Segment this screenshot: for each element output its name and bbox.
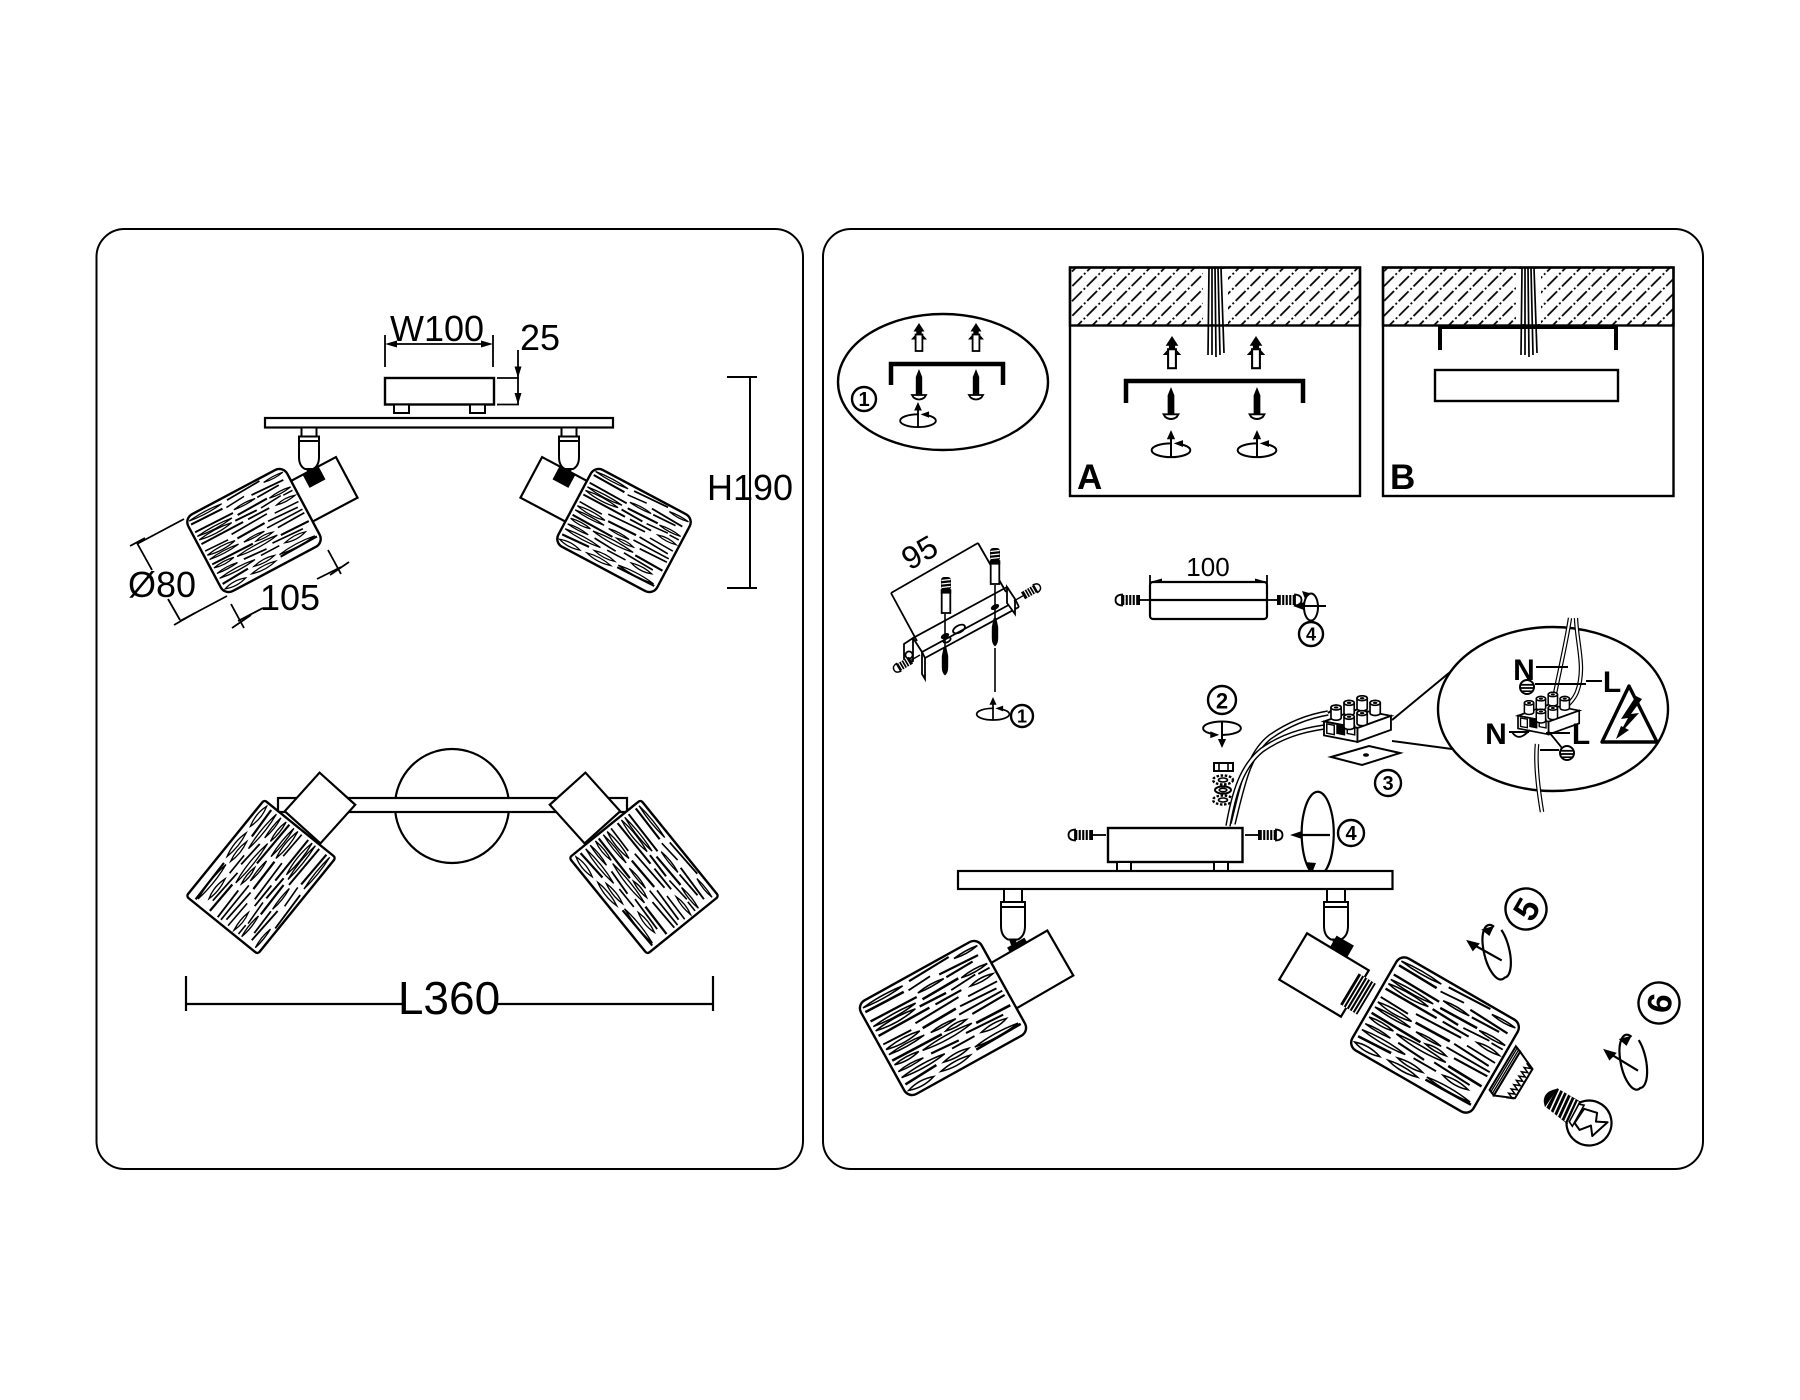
svg-text:105: 105	[260, 577, 320, 618]
svg-text:2: 2	[1216, 688, 1228, 713]
svg-text:L: L	[1603, 666, 1621, 699]
svg-text:100: 100	[1186, 552, 1229, 582]
svg-text:3: 3	[1382, 773, 1393, 795]
svg-text:Ø80: Ø80	[128, 564, 196, 605]
svg-text:N: N	[1485, 718, 1507, 751]
svg-text:A: A	[1077, 458, 1102, 497]
svg-text:1: 1	[1017, 707, 1027, 727]
svg-text:25: 25	[520, 317, 560, 358]
svg-text:W100: W100	[390, 308, 484, 349]
svg-text:H190: H190	[707, 467, 793, 508]
svg-text:L360: L360	[398, 972, 500, 1024]
svg-text:L: L	[1572, 718, 1590, 751]
svg-text:4: 4	[1306, 625, 1316, 645]
svg-text:B: B	[1390, 458, 1415, 497]
svg-text:4: 4	[1345, 823, 1357, 845]
svg-text:1: 1	[858, 389, 869, 411]
